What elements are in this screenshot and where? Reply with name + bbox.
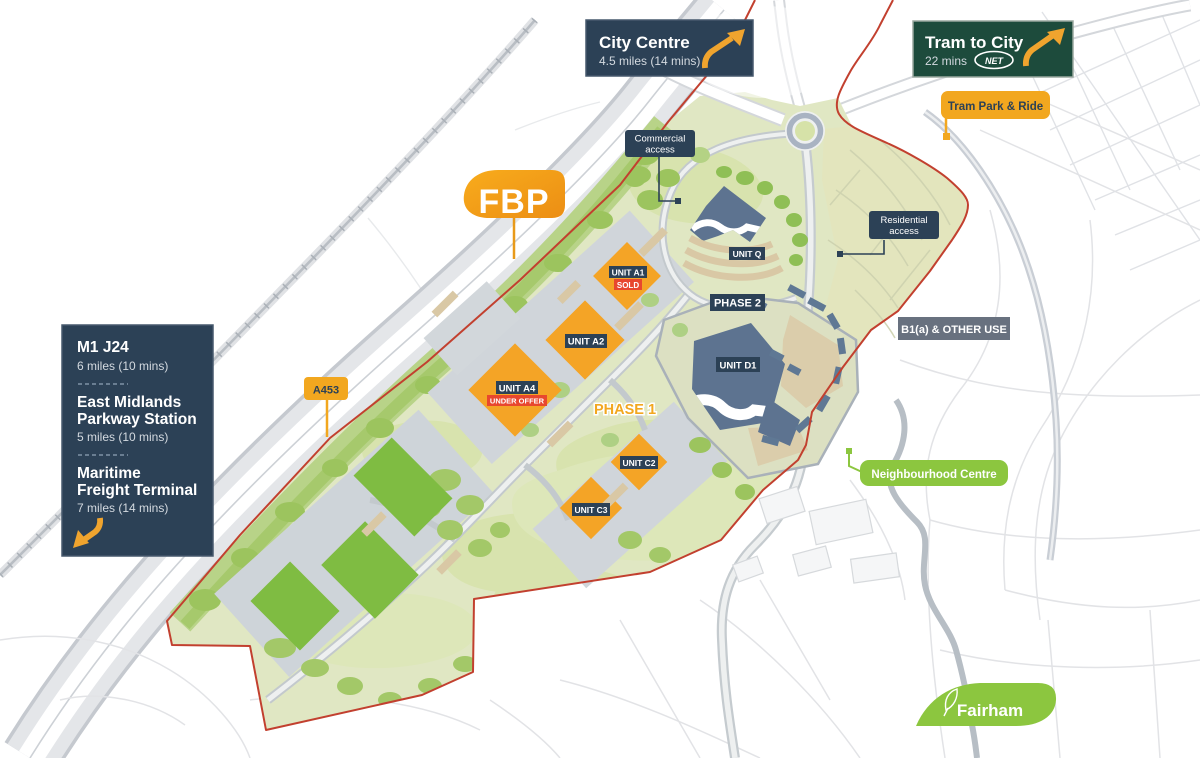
svg-text:SOLD: SOLD	[617, 281, 639, 290]
svg-text:22 mins: 22 mins	[925, 54, 967, 68]
svg-text:PHASE 1: PHASE 1	[594, 402, 656, 418]
svg-text:Residential: Residential	[881, 215, 928, 226]
svg-text:B1(a) & OTHER USE: B1(a) & OTHER USE	[901, 324, 1007, 336]
svg-text:NET: NET	[985, 56, 1005, 66]
svg-text:6 miles (10 mins): 6 miles (10 mins)	[77, 359, 168, 373]
svg-text:Tram Park & Ride: Tram Park & Ride	[948, 101, 1043, 113]
svg-text:Commercial: Commercial	[635, 134, 686, 145]
svg-text:UNDER OFFER: UNDER OFFER	[490, 397, 545, 406]
svg-text:UNIT C3: UNIT C3	[574, 505, 607, 515]
svg-text:UNIT C2: UNIT C2	[622, 458, 655, 468]
svg-text:access: access	[645, 145, 675, 156]
svg-text:FBP: FBP	[479, 183, 550, 221]
svg-text:4.5 miles (14 mins): 4.5 miles (14 mins)	[599, 54, 700, 68]
svg-text:PHASE 2: PHASE 2	[714, 298, 761, 310]
svg-text:Tram to City: Tram to City	[925, 33, 1024, 52]
svg-text:UNIT A1: UNIT A1	[612, 268, 645, 278]
svg-text:7 miles (14 mins): 7 miles (14 mins)	[77, 501, 168, 515]
svg-text:access: access	[889, 226, 919, 237]
svg-text:Maritime: Maritime	[77, 465, 141, 482]
svg-text:Parkway Station: Parkway Station	[77, 411, 197, 428]
svg-text:City Centre: City Centre	[599, 33, 690, 52]
svg-text:UNIT Q: UNIT Q	[733, 249, 762, 259]
svg-text:East Midlands: East Midlands	[77, 394, 181, 411]
svg-text:A453: A453	[313, 385, 339, 397]
svg-text:Freight Terminal: Freight Terminal	[77, 482, 197, 499]
svg-text:5 miles (10 mins): 5 miles (10 mins)	[77, 430, 168, 444]
svg-text:Fairham: Fairham	[957, 701, 1023, 720]
svg-text:M1 J24: M1 J24	[77, 339, 129, 356]
svg-text:UNIT A2: UNIT A2	[568, 337, 605, 348]
svg-text:UNIT D1: UNIT D1	[720, 361, 758, 372]
svg-text:UNIT A4: UNIT A4	[499, 384, 536, 395]
svg-text:Neighbourhood Centre: Neighbourhood Centre	[871, 469, 996, 481]
